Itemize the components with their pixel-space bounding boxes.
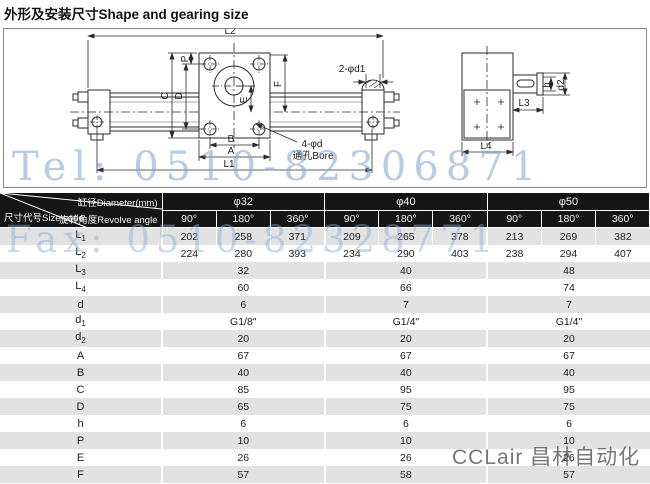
size-code-cell: F [0, 466, 162, 483]
table-row: L4606674 [0, 279, 650, 296]
value-cell: 67 [325, 347, 488, 364]
value-cell: 213 [487, 228, 541, 246]
dim-label-L1: L1 [223, 159, 235, 170]
angle-header: 180° [541, 211, 595, 228]
value-cell: 6 [325, 415, 488, 432]
table-row: E262626 [0, 449, 650, 466]
dim-label-L4: L4 [480, 141, 492, 152]
value-cell: 58 [325, 466, 488, 483]
size-code-cell: d2 [0, 330, 162, 347]
table-row: D657575 [0, 398, 650, 415]
cylinder-drawing: L2 L1 A B P C D E F 2-φd1 4-φd 通孔Bore h … [4, 29, 646, 185]
table-row: A676767 [0, 347, 650, 364]
value-cell: 7 [487, 296, 650, 313]
bore-label: 4-φd [302, 139, 323, 150]
value-cell: 202 [162, 228, 216, 246]
value-cell: 32 [162, 262, 325, 279]
size-code-cell: d1 [0, 313, 162, 330]
table-row: C859595 [0, 381, 650, 398]
dim-label-F: F [273, 81, 284, 87]
value-cell: 85 [162, 381, 325, 398]
value-cell: 209 [325, 228, 379, 246]
angle-header: 90° [325, 211, 379, 228]
value-cell: 290 [379, 245, 433, 262]
dim-label-L3: L3 [518, 98, 530, 109]
value-cell: 238 [487, 245, 541, 262]
ports-label: 2-φd1 [339, 64, 366, 75]
corner-sizecode-label: 尺寸代号Size code [4, 210, 84, 224]
table-row: B404040 [0, 364, 650, 381]
angle-header: 90° [487, 211, 541, 228]
value-cell: 393 [270, 245, 324, 262]
value-cell: 40 [325, 364, 488, 381]
table-row: P101010 [0, 432, 650, 449]
value-cell: 403 [433, 245, 487, 262]
value-cell: 26 [162, 449, 325, 466]
angle-header: 360° [270, 211, 324, 228]
dim-label-A: A [228, 146, 235, 157]
size-code-cell: h [0, 415, 162, 432]
value-cell: 7 [325, 296, 488, 313]
table-row: d2202020 [0, 330, 650, 347]
dim-label-L2: L2 [224, 29, 236, 37]
value-cell: 40 [162, 364, 325, 381]
value-cell: 234 [325, 245, 379, 262]
size-code-cell: L4 [0, 279, 162, 296]
diameter-group-header: φ50 [487, 193, 650, 211]
value-cell: 265 [379, 228, 433, 246]
table-corner-header: 缸径Diameter(mm) 旋转角度Revolve angle 尺寸代号Siz… [0, 193, 162, 228]
value-cell: 95 [325, 381, 488, 398]
value-cell: 75 [487, 398, 650, 415]
value-cell: 294 [541, 245, 595, 262]
table-row: L3324048 [0, 262, 650, 279]
value-cell: 65 [162, 398, 325, 415]
corner-diameter-label: 缸径Diameter(mm) [78, 195, 158, 209]
value-cell: G1/4" [325, 313, 488, 330]
value-cell: 48 [487, 262, 650, 279]
angle-header: 360° [433, 211, 487, 228]
size-code-cell: L3 [0, 262, 162, 279]
value-cell: 66 [325, 279, 488, 296]
value-cell: 60 [162, 279, 325, 296]
value-cell: 20 [487, 330, 650, 347]
angle-header: 360° [596, 211, 650, 228]
value-cell: 40 [325, 262, 488, 279]
size-code-cell: d [0, 296, 162, 313]
table-row: L2224280393234290403238294407 [0, 245, 650, 262]
table-row: h666 [0, 415, 650, 432]
value-cell: 10 [325, 432, 488, 449]
size-code-cell: D [0, 398, 162, 415]
value-cell: 378 [433, 228, 487, 246]
value-cell: 67 [487, 347, 650, 364]
size-code-cell: B [0, 364, 162, 381]
technical-drawing: L2 L1 A B P C D E F 2-φd1 4-φd 通孔Bore h … [3, 28, 647, 188]
dim-label-E: E [239, 96, 250, 103]
value-cell: 20 [325, 330, 488, 347]
size-code-cell: L2 [0, 245, 162, 262]
diameter-group-header: φ40 [325, 193, 488, 211]
page-title: 外形及安装尺寸Shape and gearing size [4, 3, 249, 23]
table-row: d1G1/8"G1/4"G1/4" [0, 313, 650, 330]
value-cell: 280 [216, 245, 270, 262]
dim-label-d2: d2 [556, 79, 567, 91]
value-cell: 10 [487, 432, 650, 449]
value-cell: 20 [162, 330, 325, 347]
dim-label-P: P [180, 55, 191, 62]
value-cell: 6 [162, 415, 325, 432]
table-row: F575857 [0, 466, 650, 483]
value-cell: 75 [325, 398, 488, 415]
diameter-group-header: φ32 [162, 193, 325, 211]
size-code-cell: A [0, 347, 162, 364]
size-code-cell: L1 [0, 228, 162, 246]
value-cell: 74 [487, 279, 650, 296]
size-code-cell: E [0, 449, 162, 466]
dim-label-h: h [542, 82, 553, 88]
value-cell: 6 [162, 296, 325, 313]
value-cell: 258 [216, 228, 270, 246]
value-cell: 407 [596, 245, 650, 262]
angle-header: 180° [379, 211, 433, 228]
dim-label-B: B [228, 134, 235, 145]
dim-label-C: C [160, 92, 171, 99]
value-cell: 10 [162, 432, 325, 449]
value-cell: 26 [325, 449, 488, 466]
value-cell: G1/4" [487, 313, 650, 330]
value-cell: 40 [487, 364, 650, 381]
value-cell: 6 [487, 415, 650, 432]
table-row: L1202258371209265378213269382 [0, 228, 650, 246]
datasheet-page: 外形及安装尺寸Shape and gearing size [0, 0, 650, 484]
angle-header: 90° [162, 211, 216, 228]
table-row: d677 [0, 296, 650, 313]
dimension-table: 缸径Diameter(mm) 旋转角度Revolve angle 尺寸代号Siz… [0, 192, 650, 483]
size-code-cell: C [0, 381, 162, 398]
size-code-cell: P [0, 432, 162, 449]
value-cell: 95 [487, 381, 650, 398]
value-cell: G1/8" [162, 313, 325, 330]
value-cell: 371 [270, 228, 324, 246]
value-cell: 382 [596, 228, 650, 246]
value-cell: 26 [487, 449, 650, 466]
value-cell: 57 [487, 466, 650, 483]
dim-label-D: D [174, 92, 185, 99]
bore-label-cn: 通孔Bore [292, 150, 334, 162]
angle-header: 180° [216, 211, 270, 228]
value-cell: 224 [162, 245, 216, 262]
value-cell: 57 [162, 466, 325, 483]
value-cell: 67 [162, 347, 325, 364]
value-cell: 269 [541, 228, 595, 246]
